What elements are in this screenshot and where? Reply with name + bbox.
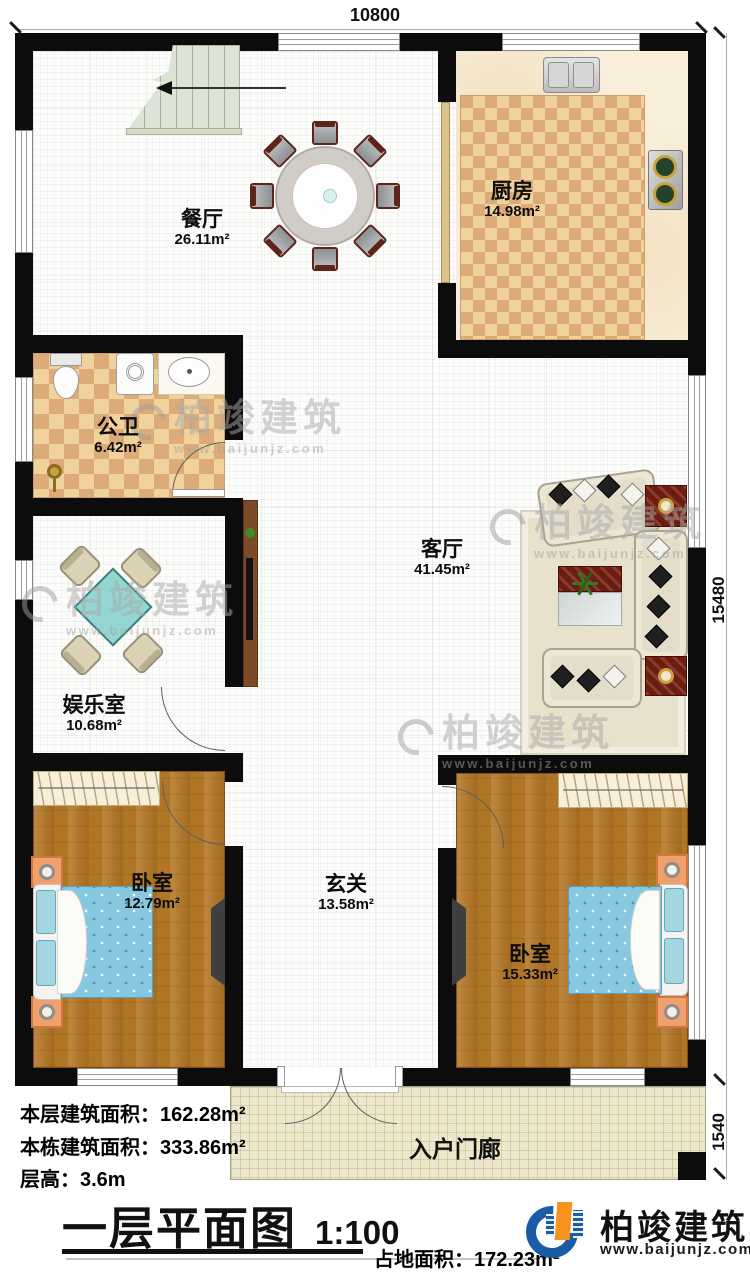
room-label-entertainment: 娱乐室 10.68m²: [63, 694, 126, 734]
window: [570, 1068, 645, 1086]
window: [77, 1068, 178, 1086]
logo-building: [546, 1214, 554, 1236]
dimension-tick: [9, 21, 22, 34]
bed-pillow: [36, 940, 56, 986]
side-table-medallion: [658, 498, 674, 514]
room-name: 玄关: [318, 873, 374, 897]
logo-building: [555, 1202, 573, 1240]
wall: [225, 516, 243, 687]
room-area: 15.33m²: [502, 966, 558, 983]
wall: [438, 755, 688, 773]
room-area: 6.42m²: [94, 439, 142, 456]
wall: [438, 340, 688, 358]
logo-building: [573, 1210, 583, 1238]
nightstand-medallion: [39, 864, 55, 880]
kitchen-sliding-door: [441, 102, 450, 283]
nightstand: [656, 854, 688, 886]
wall: [225, 771, 243, 782]
stat-label: 层高：: [20, 1169, 80, 1191]
dining-chair: [312, 121, 338, 145]
dimension-porch-right: 1540: [709, 1077, 729, 1187]
stat-value: 162.28m²: [160, 1104, 246, 1126]
stairs-rail: [126, 128, 242, 135]
window: [688, 375, 706, 548]
window: [502, 33, 640, 51]
door-leaf: [172, 489, 225, 497]
stat-building-area: 本栋建筑面积：333.86m²: [20, 1131, 246, 1160]
sink-drain: [187, 369, 192, 374]
wall: [15, 753, 243, 771]
floor-drain-stem: [53, 479, 56, 492]
window: [688, 845, 706, 1040]
plan-title-row: 一层平面图 1:100: [62, 1192, 399, 1257]
sink-basin: [548, 62, 569, 88]
wall: [438, 51, 456, 102]
stairs-arrow-icon: [156, 81, 172, 95]
wall: [225, 335, 243, 440]
stove-burner: [653, 182, 677, 206]
side-table-medallion: [658, 668, 674, 684]
room-name: 厨房: [484, 180, 540, 204]
wardrobe: [33, 771, 160, 806]
room-name: 卧室: [124, 872, 180, 896]
wall: [15, 51, 33, 130]
stairs-direction-line: [170, 87, 286, 89]
room-name: 卧室: [502, 943, 558, 967]
stat-floor-height: 层高：3.6m: [20, 1163, 126, 1192]
brand-url: www.baijunjz.com: [600, 1241, 750, 1258]
stat-label: 本层建筑面积：: [20, 1104, 160, 1126]
dining-chair: [250, 183, 274, 209]
dimension-tick: [713, 26, 726, 39]
wall: [645, 1068, 706, 1086]
room-name: 客厅: [414, 538, 470, 562]
room-name: 娱乐室: [63, 694, 126, 718]
tv: [211, 898, 225, 986]
coffee-table-glass: [558, 592, 622, 626]
brand-logo-icon: [526, 1198, 592, 1262]
bed-pillow: [664, 938, 684, 984]
tv: [246, 558, 253, 640]
room-label-bedroom-left: 卧室 12.79m²: [124, 872, 180, 912]
porch-pillar: [678, 1152, 706, 1180]
wall: [178, 1068, 278, 1086]
plant: [572, 570, 598, 596]
window: [278, 33, 400, 51]
plant: [245, 528, 255, 538]
room-area: 10.68m²: [63, 717, 126, 734]
tv: [452, 898, 466, 986]
window: [15, 130, 33, 253]
wall: [15, 1068, 77, 1086]
wall: [438, 773, 456, 785]
room-label-kitchen: 厨房 14.98m²: [484, 180, 540, 220]
room-label-living: 客厅 41.45m²: [414, 538, 470, 578]
dimension-line-top: [15, 29, 706, 30]
dining-chair: [376, 183, 400, 209]
dining-table-detail: [323, 189, 337, 203]
stat-floor-area: 本层建筑面积：162.28m²: [20, 1098, 246, 1127]
wall: [15, 498, 243, 516]
nightstand-medallion: [39, 1004, 55, 1020]
room-area: 41.45m²: [414, 561, 470, 578]
room-area: 26.11m²: [174, 231, 229, 248]
nightstand-medallion: [664, 862, 680, 878]
window: [15, 560, 33, 600]
dimension-top: 10800: [322, 5, 428, 26]
floor-drain: [47, 464, 62, 479]
wall: [15, 253, 33, 377]
room-area: 14.98m²: [484, 203, 540, 220]
room-name: 公卫: [94, 416, 142, 440]
room-area: 13.58m²: [318, 896, 374, 913]
door-jamb: [277, 1066, 285, 1087]
side-table: [645, 485, 687, 527]
washing-machine-door: [126, 363, 144, 381]
room-area: 12.79m²: [124, 895, 180, 912]
wall: [225, 846, 243, 1068]
plan-title: 一层平面图: [62, 1192, 297, 1257]
room-label-porch: 入户门廊: [409, 1130, 501, 1164]
floor-plan: 柏竣建筑 www.baijunjz.com 柏竣建筑 www.baijunjz.…: [0, 0, 750, 1272]
room-label-bedroom-right: 卧室 15.33m²: [502, 943, 558, 983]
wall: [688, 548, 706, 845]
room-label-dining: 餐厅 26.11m²: [174, 208, 229, 248]
stat-value: 3.6m: [80, 1169, 126, 1191]
stat-label: 占地面积：: [374, 1249, 474, 1271]
bed-pillow: [36, 890, 56, 934]
bed-pillow: [664, 888, 684, 932]
wall: [15, 335, 243, 353]
stat-label: 本栋建筑面积：: [20, 1137, 160, 1159]
bed-blanket: [630, 890, 660, 990]
room-name: 餐厅: [174, 208, 229, 232]
wardrobe: [558, 773, 688, 808]
toilet-tank: [50, 353, 82, 366]
window: [15, 377, 33, 462]
room-label-bathroom: 公卫 6.42m²: [94, 416, 142, 456]
dimension-right: 15480: [709, 545, 729, 655]
nightstand: [656, 996, 688, 1028]
stat-value: 333.86m²: [160, 1137, 246, 1159]
wall: [400, 1068, 570, 1086]
room-label-foyer: 玄关 13.58m²: [318, 873, 374, 913]
stove-burner: [653, 155, 677, 179]
side-table: [645, 656, 687, 696]
nightstand: [31, 996, 63, 1028]
nightstand-medallion: [664, 1004, 680, 1020]
sink-basin: [573, 62, 594, 88]
title-underline: [62, 1249, 363, 1254]
wall: [688, 33, 706, 375]
dining-chair: [312, 247, 338, 271]
dimension-tick: [695, 21, 708, 34]
wall: [400, 33, 502, 51]
